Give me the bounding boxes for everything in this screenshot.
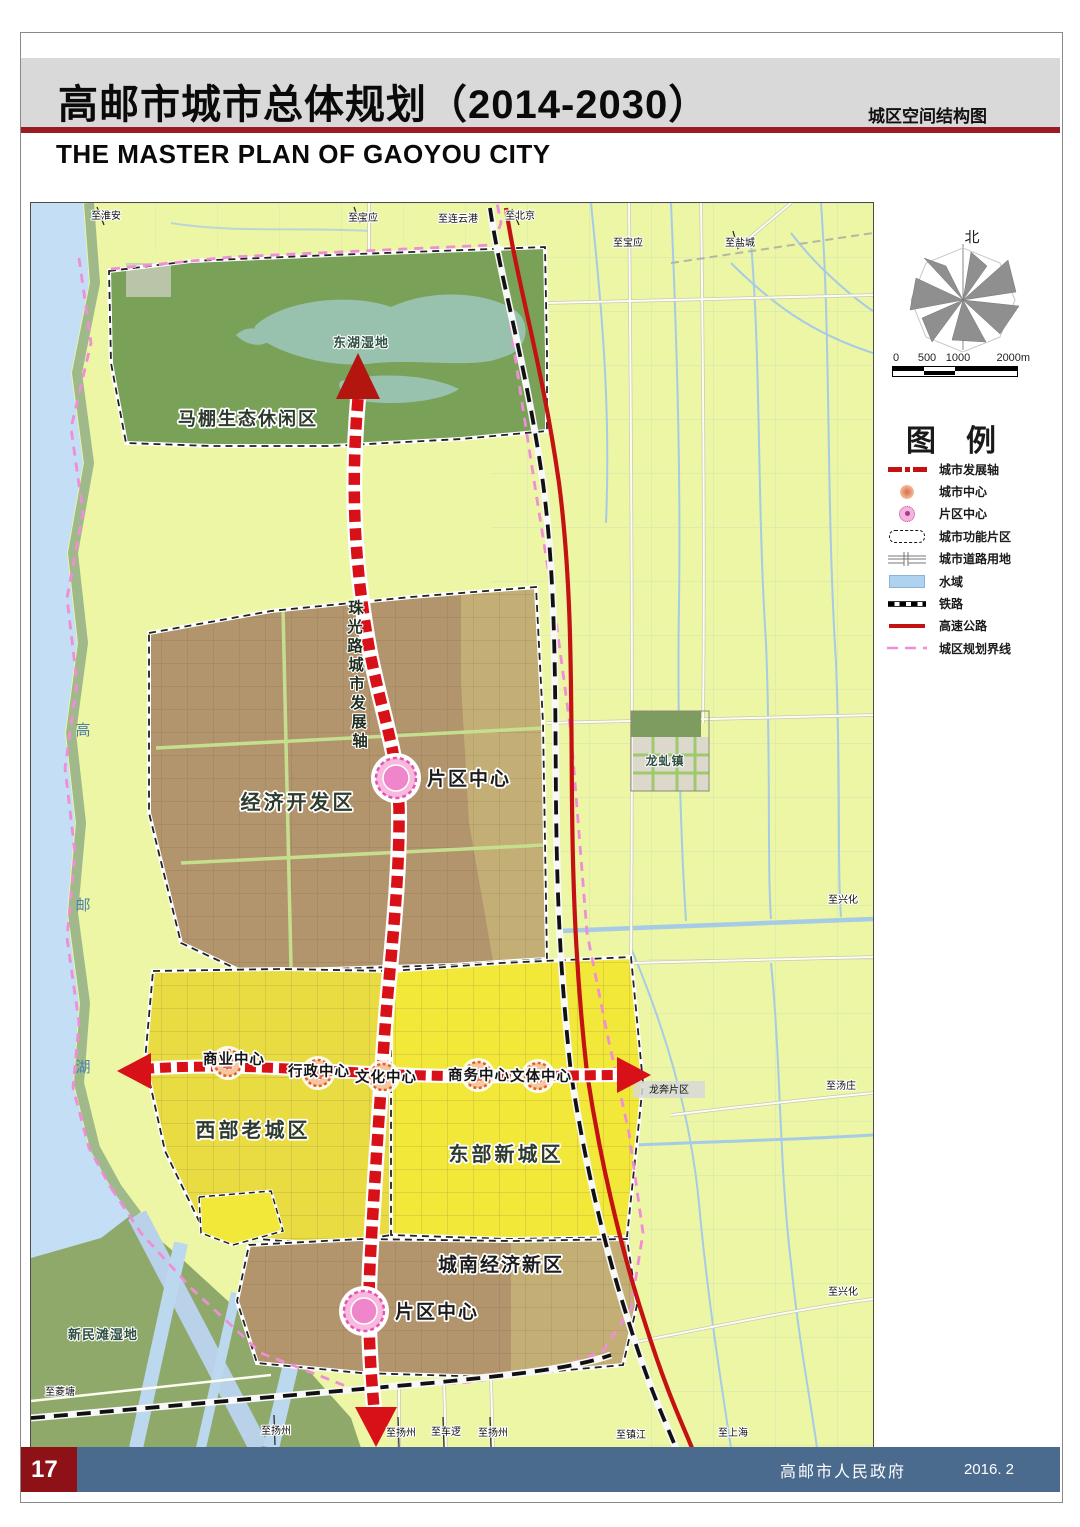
- label-longqiu: 龙虬镇: [645, 753, 684, 768]
- legend-item-water: 水域: [884, 570, 1054, 592]
- label-economic-zone: 经济开发区: [241, 790, 356, 814]
- page-title: 高邮市城市总体规划（2014-2030）: [58, 72, 709, 130]
- legend-item-functional-district: 城市功能片区: [884, 525, 1054, 547]
- legend-item-expressway: 高速公路: [884, 615, 1054, 637]
- svg-text:轴: 轴: [352, 731, 368, 750]
- label-west-old-town: 西部老城区: [196, 1118, 311, 1142]
- svg-text:珠: 珠: [348, 598, 364, 617]
- scale-bar: 0 500 1000 2000m: [892, 352, 1032, 378]
- edge-label-yangzhou-3: 至扬州: [478, 1426, 508, 1439]
- edge-label-xinghua-1: 至兴化: [828, 893, 858, 906]
- edge-label-baoying-2: 至宝应: [613, 236, 643, 249]
- header-rule: [21, 127, 1060, 133]
- mapeng-eco-zone: [109, 247, 547, 446]
- legend-item-district-center: 片区中心: [884, 503, 1054, 525]
- edge-label-yangzhou-2: 至扬州: [386, 1426, 416, 1439]
- edge-label-yancheng: 至盐城: [725, 236, 755, 249]
- label-district-center-2: 片区中心: [395, 1300, 479, 1323]
- scale-labels: 0 500 1000 2000m: [892, 352, 1032, 365]
- legend: 城市发展轴 城市中心 片区中心 城市功能片区 城市道路用地 水域: [884, 458, 1054, 660]
- legend-symbol-district-center: [884, 506, 930, 522]
- label-donghu-wetland: 东湖湿地: [333, 335, 389, 350]
- legend-symbol-water: [884, 575, 930, 588]
- svg-text:邮: 邮: [75, 897, 90, 914]
- footer-date: 2016. 2: [964, 1461, 1014, 1478]
- legend-item-boundary: 城区规划界线: [884, 637, 1054, 659]
- legend-symbol-boundary: [884, 646, 930, 650]
- edge-label-lingtang: 至菱塘: [45, 1385, 75, 1398]
- edge-label-xinghua-2: 至兴化: [828, 1285, 858, 1298]
- edge-label-baoying-1: 至宝应: [348, 211, 378, 224]
- scale-bar-graphic: [892, 366, 1018, 377]
- footer-page-number: 17: [21, 1447, 77, 1492]
- svg-text:展: 展: [351, 713, 367, 731]
- map-canvas: 马棚生态休闲区 东湖湿地 经济开发区 西部老城区 东部新城区 城南经济新区 新民…: [30, 202, 874, 1449]
- longqiu-town: [631, 711, 709, 791]
- planning-map: 马棚生态休闲区 东湖湿地 经济开发区 西部老城区 东部新城区 城南经济新区 新民…: [31, 203, 873, 1448]
- svg-text:城: 城: [348, 656, 364, 674]
- label-cultural-center: 文化中心: [355, 1068, 417, 1086]
- legend-symbol-city-center: [884, 485, 930, 499]
- legend-item-development-axis: 城市发展轴: [884, 458, 1054, 480]
- label-longben: 龙奔片区: [649, 1083, 689, 1096]
- label-xinmintan: 新民滩湿地: [68, 1327, 138, 1342]
- label-commercial-center: 商业中心: [203, 1050, 265, 1068]
- map-subtitle: 城区空间结构图: [868, 102, 987, 127]
- legend-item-railway: 铁路: [884, 592, 1054, 614]
- label-south-district: 城南经济新区: [438, 1253, 564, 1276]
- legend-item-road-land: 城市道路用地: [884, 548, 1054, 570]
- legend-symbol-railway: [884, 600, 930, 608]
- page-title-english: THE MASTER PLAN OF GAOYOU CITY: [56, 139, 551, 170]
- label-administrative-center: 行政中心: [287, 1062, 350, 1080]
- edge-label-cheluo: 至车逻: [431, 1425, 461, 1438]
- label-business-center: 商务中心: [448, 1066, 510, 1084]
- svg-text:发: 发: [349, 693, 366, 712]
- north-arrow: 北: [888, 230, 1038, 352]
- legend-item-city-center: 城市中心: [884, 480, 1054, 502]
- svg-text:湖: 湖: [75, 1059, 90, 1076]
- legend-symbol-road-land: [884, 552, 930, 566]
- label-east-new-town: 东部新城区: [449, 1142, 564, 1166]
- footer-publisher: 高邮市人民政府: [780, 1458, 906, 1482]
- north-label: 北: [964, 230, 979, 246]
- footer-bar: 17 高邮市人民政府 2016. 2: [21, 1447, 1060, 1492]
- legend-symbol-development-axis: [884, 467, 930, 472]
- svg-text:高: 高: [75, 722, 90, 739]
- svg-text:光: 光: [346, 617, 363, 636]
- label-district-center-1: 片区中心: [427, 767, 511, 790]
- legend-symbol-functional-district: [884, 530, 930, 543]
- edge-label-shanghai: 至上海: [718, 1426, 748, 1439]
- label-sports-center: 文体中心: [510, 1067, 572, 1085]
- edge-label-yangzhou-1: 至扬州: [261, 1424, 291, 1437]
- edge-label-beijing: 至北京: [505, 209, 535, 222]
- label-mapeng-eco-zone: 马棚生态休闲区: [178, 408, 318, 429]
- svg-text:市: 市: [349, 674, 365, 693]
- legend-title: 图例: [906, 416, 1026, 460]
- legend-symbol-expressway: [884, 624, 930, 628]
- plan-sheet: 高邮市城市总体规划（2014-2030） 城区空间结构图 THE MASTER …: [0, 0, 1080, 1527]
- edge-label-zhenjiang: 至镇江: [616, 1428, 646, 1441]
- edge-label-huaian: 至淮安: [91, 209, 121, 222]
- east-new-town: [391, 957, 643, 1239]
- edge-label-tangzhuang: 至汤庄: [826, 1079, 856, 1092]
- edge-label-lianyungang: 至连云港: [438, 212, 478, 225]
- svg-text:路: 路: [347, 636, 363, 655]
